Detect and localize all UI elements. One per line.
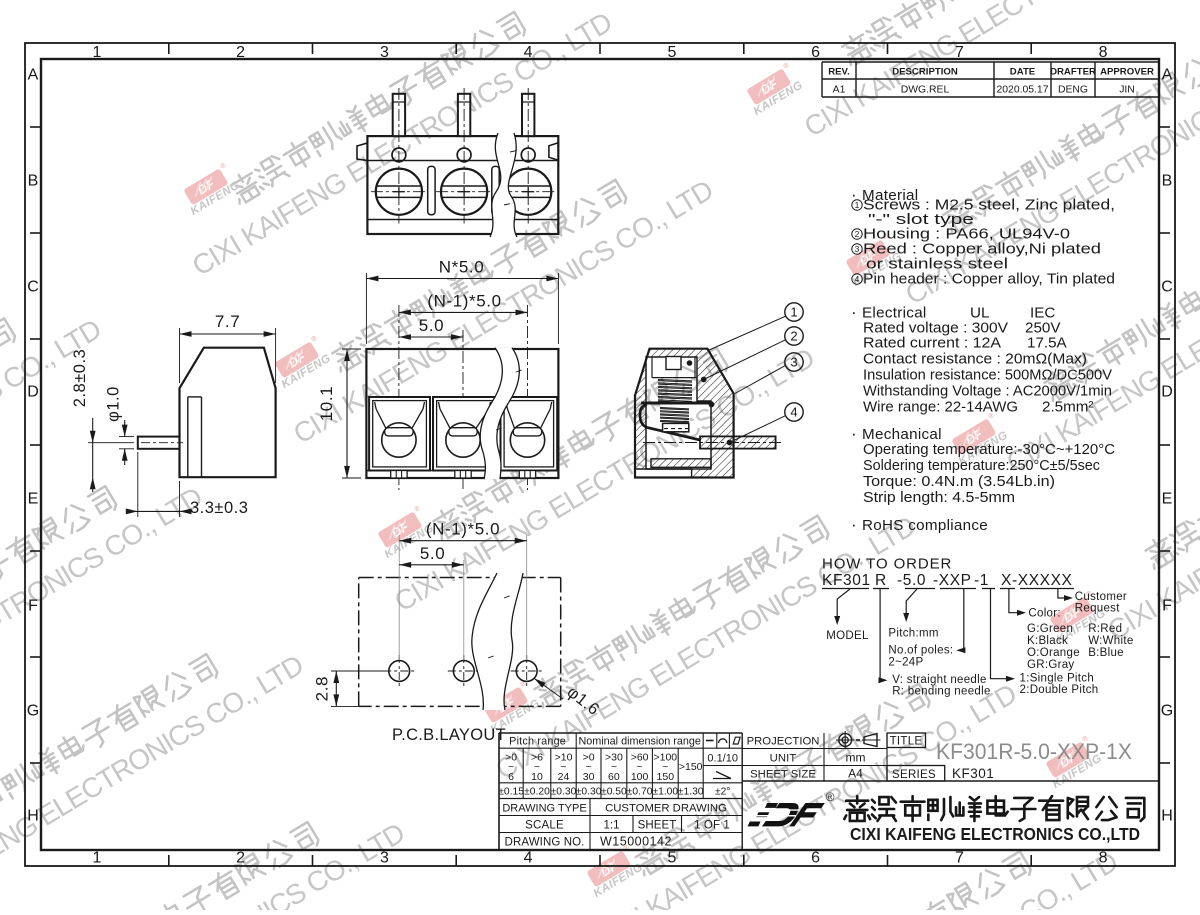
svg-text:Rated current : 12A: Rated current : 12A [863, 335, 1002, 352]
svg-text:4: 4 [855, 274, 860, 284]
svg-text:2:Double Pitch: 2:Double Pitch [1020, 684, 1099, 696]
svg-text:1: 1 [790, 305, 797, 320]
svg-text:D: D [1161, 384, 1173, 401]
svg-text:-XXP: -XXP [933, 572, 972, 589]
svg-text:150: 150 [657, 771, 675, 783]
svg-text:UNIT: UNIT [770, 753, 797, 765]
svg-text:Soldering temperature:250°C±5/: Soldering temperature:250°C±5/5sec [863, 457, 1100, 474]
svg-text:DRAFTER: DRAFTER [1050, 67, 1096, 78]
svg-text:Insulation resistance: 500MΩ/D: Insulation resistance: 500MΩ/DC500V [863, 367, 1113, 384]
svg-text:PROJECTION: PROJECTION [747, 736, 820, 748]
svg-text:Nominal dimension range: Nominal dimension range [578, 736, 700, 748]
svg-text:2: 2 [790, 329, 797, 344]
svg-text:GR:Gray: GR:Gray [1027, 659, 1074, 671]
svg-text:(N-1)*5.0: (N-1)*5.0 [427, 292, 501, 311]
svg-text:X: X [1001, 572, 1012, 589]
svg-text:SHEET: SHEET [638, 820, 677, 832]
svg-text:G: G [27, 703, 39, 720]
svg-text:17.5A: 17.5A [1027, 335, 1068, 352]
svg-text:1: 1 [92, 850, 101, 867]
svg-text:2020.05.17: 2020.05.17 [996, 85, 1048, 96]
svg-text:RoHS compliance: RoHS compliance [862, 517, 988, 534]
svg-text:4: 4 [524, 44, 533, 61]
svg-text:60: 60 [608, 771, 620, 783]
svg-text:8: 8 [1099, 44, 1108, 61]
svg-text:DRAWING NO.: DRAWING NO. [505, 837, 585, 849]
svg-text:Torque: 0.4N.m (3.54Lb.in): Torque: 0.4N.m (3.54Lb.in) [863, 473, 1055, 490]
svg-text:5.0: 5.0 [419, 316, 444, 335]
svg-text:±0.50: ±0.50 [601, 787, 627, 798]
svg-text:DWG.REL: DWG.REL [901, 85, 950, 96]
svg-text:2: 2 [236, 850, 245, 867]
svg-text:2.8: 2.8 [313, 676, 332, 701]
svg-text:1:1: 1:1 [604, 820, 620, 832]
svg-text:Customer: Customer [1075, 591, 1127, 603]
svg-text:φ1.0: φ1.0 [105, 386, 123, 422]
svg-text:W15000142: W15000142 [600, 835, 672, 849]
svg-text:A: A [28, 67, 39, 84]
svg-text:B:Blue: B:Blue [1088, 647, 1124, 659]
svg-text:>150: >150 [679, 761, 703, 773]
svg-text:7.7: 7.7 [215, 312, 240, 331]
svg-text:P.C.B.LAYOUT: P.C.B.LAYOUT [392, 726, 506, 744]
svg-text:4: 4 [524, 850, 533, 867]
svg-text:KF301: KF301 [952, 766, 994, 781]
svg-text:5: 5 [667, 44, 676, 61]
svg-text:A1: A1 [833, 85, 846, 96]
svg-text:F: F [1162, 598, 1172, 615]
svg-text:2~24P: 2~24P [888, 656, 923, 668]
svg-text:Color:: Color: [1028, 607, 1060, 619]
svg-text:DENG: DENG [1058, 85, 1088, 96]
svg-text:±0.15: ±0.15 [498, 787, 524, 798]
svg-text:3: 3 [380, 850, 389, 867]
svg-text:2: 2 [236, 44, 245, 61]
svg-text:6: 6 [811, 850, 820, 867]
svg-text:C: C [27, 279, 39, 296]
svg-text:SCALE: SCALE [525, 820, 564, 832]
svg-text:CIXI KAIFENG ELECTRONICS CO.,L: CIXI KAIFENG ELECTRONICS CO.,LTD [850, 824, 1140, 844]
svg-text:3: 3 [790, 355, 797, 370]
svg-text:30: 30 [583, 771, 595, 783]
svg-text:B: B [28, 173, 39, 190]
svg-text:-5.0: -5.0 [897, 572, 926, 589]
svg-text:R: R [875, 572, 887, 589]
svg-text:2: 2 [855, 229, 860, 239]
svg-text:Pitch:mm: Pitch:mm [888, 627, 938, 639]
svg-text:No.of poles:: No.of poles: [888, 645, 953, 657]
svg-text:K:Black: K:Black [1027, 635, 1068, 647]
svg-text:±2°: ±2° [715, 787, 731, 798]
svg-text:6: 6 [811, 44, 820, 61]
svg-text:3: 3 [380, 44, 389, 61]
svg-text:G:Green: G:Green [1027, 623, 1073, 635]
svg-text:G: G [1161, 703, 1173, 720]
svg-text:1 OF 1: 1 OF 1 [694, 820, 730, 832]
svg-text:H: H [1161, 808, 1173, 825]
svg-text:E: E [28, 491, 39, 508]
svg-text:HOW TO ORDER: HOW TO ORDER [822, 555, 952, 572]
svg-text:TITLE: TITLE [890, 735, 923, 747]
svg-text:MODEL: MODEL [826, 630, 869, 642]
svg-text:2.8±0.3: 2.8±0.3 [71, 349, 89, 407]
svg-text:±0.30: ±0.30 [551, 787, 577, 798]
svg-text:2.5mm²: 2.5mm² [1042, 399, 1093, 416]
svg-text:APPROVER: APPROVER [1100, 67, 1154, 78]
svg-text:V: straight needle: V: straight needle [892, 674, 986, 686]
svg-text:3: 3 [855, 244, 860, 254]
svg-text:7: 7 [955, 850, 964, 867]
svg-text:B: B [1162, 173, 1173, 190]
svg-text:Withstanding Voltage : AC2000V: Withstanding Voltage : AC2000V/1min [863, 383, 1112, 400]
svg-text:DRAWING TYPE: DRAWING TYPE [502, 803, 586, 815]
svg-text:A: A [1162, 67, 1173, 84]
svg-text:KF301: KF301 [822, 572, 871, 589]
svg-text:10: 10 [531, 771, 543, 783]
svg-text:1:Single Pitch: 1:Single Pitch [1020, 672, 1095, 684]
svg-text:W:White: W:White [1088, 635, 1133, 647]
svg-text:O:Orange: O:Orange [1027, 647, 1080, 659]
svg-text:KF301R-5.0-XXP-1X: KF301R-5.0-XXP-1X [936, 739, 1132, 764]
svg-text:Wire range: 22-14AWG: Wire range: 22-14AWG [863, 399, 1018, 416]
svg-text:DESCRIPTION: DESCRIPTION [892, 67, 958, 78]
svg-text:Request: Request [1075, 602, 1120, 614]
svg-text:F: F [28, 598, 38, 615]
svg-text:H: H [27, 808, 39, 825]
svg-text:Contact resistance : 20mΩ(Max): Contact resistance : 20mΩ(Max) [863, 351, 1087, 368]
svg-text:5.0: 5.0 [420, 544, 445, 563]
svg-text:R: bending needle: R: bending needle [892, 685, 990, 697]
svg-text:3.3±0.3: 3.3±0.3 [190, 499, 248, 517]
svg-text:C: C [1161, 279, 1173, 296]
svg-text:mm: mm [846, 751, 866, 765]
svg-text:-1: -1 [974, 572, 989, 589]
svg-text:100: 100 [631, 771, 649, 783]
svg-text:Pitch range: Pitch range [509, 736, 566, 748]
svg-text:D: D [27, 384, 39, 401]
svg-text:1: 1 [855, 200, 860, 210]
svg-text:10.1: 10.1 [317, 386, 336, 422]
svg-text:SERIES: SERIES [892, 769, 936, 781]
svg-text:24: 24 [558, 771, 570, 783]
svg-text:±1.30: ±1.30 [678, 787, 704, 798]
svg-text:A4: A4 [848, 767, 863, 781]
svg-text:6: 6 [508, 771, 514, 783]
svg-text:8: 8 [1099, 850, 1108, 867]
svg-text:±1.00: ±1.00 [652, 787, 678, 798]
svg-text:5: 5 [667, 850, 676, 867]
svg-text:®: ® [826, 790, 835, 804]
svg-text:Strip length: 4.5-5mm: Strip length: 4.5-5mm [863, 489, 1015, 506]
svg-text:·: · [851, 303, 857, 322]
svg-text:DATE: DATE [1010, 67, 1036, 78]
svg-text:Pin header : Copper alloy, Tin: Pin header : Copper alloy, Tin plated [863, 271, 1115, 288]
svg-text:CUSTOMER DRAWING: CUSTOMER DRAWING [605, 803, 727, 815]
svg-text:±0.20: ±0.20 [524, 787, 550, 798]
svg-text:·: · [851, 515, 857, 534]
svg-text:N*5.0: N*5.0 [439, 258, 485, 277]
svg-text:±0.70: ±0.70 [627, 787, 653, 798]
svg-text:(N-1)*5.0: (N-1)*5.0 [426, 520, 500, 539]
svg-text:1: 1 [92, 44, 101, 61]
svg-text:4: 4 [790, 405, 797, 420]
svg-text:R:Red: R:Red [1088, 623, 1122, 635]
svg-text:Operating temperature:-30°C~+1: Operating temperature:-30°C~+120°C [863, 441, 1115, 458]
svg-text:0.1/10: 0.1/10 [707, 753, 738, 765]
svg-text:7: 7 [955, 44, 964, 61]
svg-text:-XXXXX: -XXXXX [1012, 572, 1073, 589]
svg-text:JIN: JIN [1119, 85, 1135, 96]
svg-text:±0.30: ±0.30 [576, 787, 602, 798]
svg-text:·: · [851, 424, 857, 443]
svg-text:SHEET SIZE: SHEET SIZE [750, 769, 816, 781]
svg-text:E: E [1162, 491, 1173, 508]
svg-text:REV.: REV. [828, 67, 850, 78]
